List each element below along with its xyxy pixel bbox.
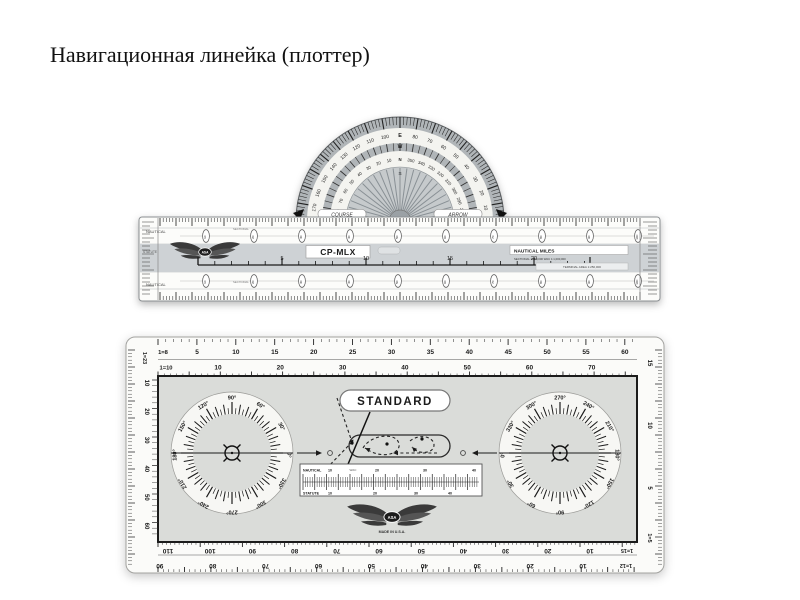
svg-text:60: 60 xyxy=(443,235,447,239)
svg-text:40: 40 xyxy=(448,492,452,496)
svg-text:110: 110 xyxy=(162,547,173,554)
svg-text:SECTIONAL: SECTIONAL xyxy=(233,280,249,284)
svg-text:70: 70 xyxy=(491,235,495,239)
svg-text:30: 30 xyxy=(473,562,481,569)
svg-text:90°: 90° xyxy=(228,396,236,402)
svg-text:ASA: ASA xyxy=(202,250,209,254)
svg-text:20: 20 xyxy=(251,235,255,239)
svg-text:50: 50 xyxy=(464,365,472,372)
svg-text:50: 50 xyxy=(367,562,375,569)
svg-text:STATUTE: STATUTE xyxy=(143,250,157,254)
svg-text:20: 20 xyxy=(251,280,255,284)
svg-text:20: 20 xyxy=(143,408,149,415)
svg-text:MADE IN U.S.A.: MADE IN U.S.A. xyxy=(379,530,406,534)
svg-text:5: 5 xyxy=(280,256,283,262)
svg-text:CP-MLX: CP-MLX xyxy=(320,247,356,257)
svg-text:90°: 90° xyxy=(556,509,564,515)
svg-text:10: 10 xyxy=(328,469,332,473)
svg-text:1=10: 1=10 xyxy=(159,366,172,372)
svg-text:10: 10 xyxy=(586,547,594,554)
svg-text:10: 10 xyxy=(646,422,652,429)
svg-text:30: 30 xyxy=(299,280,303,284)
svg-text:30: 30 xyxy=(414,492,418,496)
svg-text:20: 20 xyxy=(544,547,552,554)
svg-text:80: 80 xyxy=(539,280,543,284)
svg-text:270°: 270° xyxy=(554,396,566,402)
svg-text:100: 100 xyxy=(204,547,215,554)
svg-text:1=8: 1=8 xyxy=(158,350,169,356)
svg-text:80: 80 xyxy=(539,235,543,239)
svg-text:SECTIONAL 1:500,000 WAC 1:1,: SECTIONAL 1:500,000 WAC 1:1,000,000 xyxy=(514,257,566,261)
svg-text:35: 35 xyxy=(427,349,435,356)
svg-text:20: 20 xyxy=(310,349,318,356)
svg-text:10: 10 xyxy=(214,365,222,372)
svg-text:E: E xyxy=(398,133,402,139)
svg-text:30: 30 xyxy=(423,469,427,473)
svg-text:50: 50 xyxy=(543,349,551,356)
svg-text:1=12: 1=12 xyxy=(620,562,632,568)
svg-text:NAUTICAL MILES: NAUTICAL MILES xyxy=(514,249,555,255)
svg-text:1=23: 1=23 xyxy=(141,352,147,364)
svg-text:30: 30 xyxy=(339,365,347,372)
svg-text:50: 50 xyxy=(395,280,399,284)
svg-text:60: 60 xyxy=(526,365,534,372)
svg-text:30: 30 xyxy=(502,547,510,554)
svg-text:80: 80 xyxy=(209,562,217,569)
svg-text:NAUTICAL: NAUTICAL xyxy=(303,469,322,473)
svg-text:60: 60 xyxy=(621,349,629,356)
cp-mlx-protractor-ruler: 1020304050607080E10011012013014015016017… xyxy=(138,100,662,310)
svg-text:50: 50 xyxy=(417,547,425,554)
svg-text:30: 30 xyxy=(388,349,396,356)
svg-text:10: 10 xyxy=(363,256,369,262)
svg-text:90: 90 xyxy=(587,280,591,284)
svg-text:5: 5 xyxy=(195,349,199,356)
svg-text:20: 20 xyxy=(375,469,379,473)
svg-text:60: 60 xyxy=(143,523,149,530)
svg-text:40: 40 xyxy=(347,235,351,239)
svg-text:10: 10 xyxy=(143,380,149,387)
svg-text:45: 45 xyxy=(505,349,513,356)
svg-text:80: 80 xyxy=(291,547,299,554)
svg-text:90: 90 xyxy=(156,562,164,569)
svg-text:55: 55 xyxy=(582,349,590,356)
svg-text:70: 70 xyxy=(491,280,495,284)
cp-mlx-plotter-image: 1020304050607080E10011012013014015016017… xyxy=(138,100,662,310)
svg-text:WAC: WAC xyxy=(350,468,358,472)
svg-text:90: 90 xyxy=(587,235,591,239)
svg-text:180°: 180° xyxy=(173,449,179,461)
svg-text:50: 50 xyxy=(143,494,149,501)
svg-text:15: 15 xyxy=(447,256,453,262)
svg-text:40: 40 xyxy=(347,280,351,284)
svg-text:15: 15 xyxy=(646,360,652,367)
svg-text:100: 100 xyxy=(635,279,639,284)
svg-text:70: 70 xyxy=(333,547,341,554)
standard-plotter-image: 1=8510152025303540455055601=101020304050… xyxy=(125,336,665,576)
svg-text:40: 40 xyxy=(420,562,428,569)
svg-text:60: 60 xyxy=(315,562,323,569)
svg-text:10: 10 xyxy=(203,280,207,284)
svg-text:10: 10 xyxy=(328,492,332,496)
svg-text:30: 30 xyxy=(143,437,149,444)
page-title: Навигационная линейка (плоттер) xyxy=(50,42,370,68)
svg-text:270°: 270° xyxy=(226,509,238,515)
svg-text:70: 70 xyxy=(262,562,270,569)
svg-text:STANDARD: STANDARD xyxy=(357,396,433,408)
svg-text:60: 60 xyxy=(375,547,383,554)
svg-text:180°: 180° xyxy=(614,449,620,461)
svg-text:1=5: 1=5 xyxy=(646,533,652,542)
svg-text:STATUTE: STATUTE xyxy=(303,492,320,496)
svg-text:10: 10 xyxy=(232,349,240,356)
svg-text:100: 100 xyxy=(635,234,639,239)
svg-text:30: 30 xyxy=(299,235,303,239)
svg-text:40: 40 xyxy=(143,465,149,472)
svg-text:SECTIONAL: SECTIONAL xyxy=(233,227,249,231)
svg-text:60: 60 xyxy=(443,280,447,284)
svg-text:10: 10 xyxy=(203,235,207,239)
svg-text:50: 50 xyxy=(395,235,399,239)
svg-text:40: 40 xyxy=(472,469,476,473)
svg-text:20: 20 xyxy=(277,365,285,372)
svg-text:40: 40 xyxy=(466,349,474,356)
svg-text:40: 40 xyxy=(401,365,409,372)
svg-text:15: 15 xyxy=(271,349,279,356)
svg-text:W: W xyxy=(398,144,403,150)
svg-text:20: 20 xyxy=(526,562,534,569)
svg-text:20: 20 xyxy=(373,492,377,496)
svg-text:10: 10 xyxy=(579,562,587,569)
svg-text:70: 70 xyxy=(588,365,596,372)
svg-text:90: 90 xyxy=(248,547,256,554)
svg-text:1=15: 1=15 xyxy=(621,547,633,553)
svg-text:40: 40 xyxy=(459,547,467,554)
svg-text:TERMINAL AREA 1:250,000: TERMINAL AREA 1:250,000 xyxy=(563,265,601,269)
svg-text:N: N xyxy=(398,157,401,162)
svg-text:ASA: ASA xyxy=(388,515,397,520)
svg-text:25: 25 xyxy=(349,349,357,356)
standard-holding-plotter: 1=8510152025303540455055601=101020304050… xyxy=(125,336,665,576)
